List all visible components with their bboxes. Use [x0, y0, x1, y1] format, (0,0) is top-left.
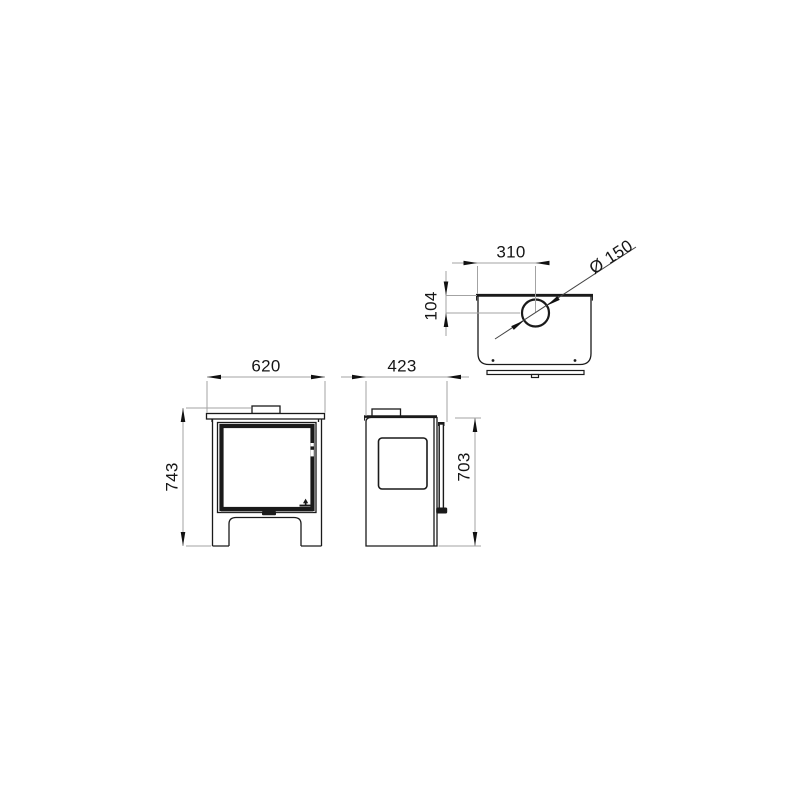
- dim-side-body-height-label: 703: [456, 452, 473, 481]
- front-legs: [213, 518, 322, 547]
- front-door-glass-frame: [222, 426, 313, 509]
- top-front-notch: [532, 375, 539, 378]
- top-screw-right: [574, 359, 577, 362]
- arrow-743-top: [181, 408, 186, 422]
- dim-423-lines: [341, 377, 469, 422]
- front-door-handle: [262, 511, 276, 515]
- arrow-620-right: [311, 375, 325, 380]
- front-view: [207, 406, 325, 546]
- side-handle-bar: [436, 422, 447, 514]
- dim-side-depth-label: 423: [387, 358, 416, 375]
- arrow-703-top: [473, 418, 478, 432]
- front-top-plate: [207, 414, 325, 420]
- arrow-703-bottom: [473, 532, 478, 546]
- arrow-104-bottom: [444, 313, 449, 327]
- stove-drawing: [0, 0, 800, 800]
- dim-flue-offset-x-label: 310: [496, 244, 525, 261]
- top-view: [476, 295, 593, 377]
- dim-703-lines: [439, 418, 482, 546]
- dim-front-width-label: 620: [251, 358, 280, 375]
- arrow-743-bottom: [181, 532, 186, 546]
- dim-front-height-label: 743: [164, 462, 181, 491]
- arrow-423-right: [447, 375, 461, 380]
- front-flue-collar: [252, 406, 280, 414]
- dimension-drawing-canvas: 620 743 423 703 310 104 Ø 150: [0, 0, 800, 800]
- arrow-620-left: [207, 375, 221, 380]
- arrow-310-left: [464, 261, 478, 266]
- side-window: [379, 438, 428, 489]
- arrow-104-top: [444, 282, 449, 296]
- top-screw-left: [492, 359, 495, 362]
- top-front-trim: [487, 371, 584, 375]
- dim-flue-offset-y-label: 104: [423, 291, 440, 320]
- arrow-423-left: [352, 375, 366, 380]
- arrow-310-right: [536, 261, 550, 266]
- side-view: [364, 409, 447, 546]
